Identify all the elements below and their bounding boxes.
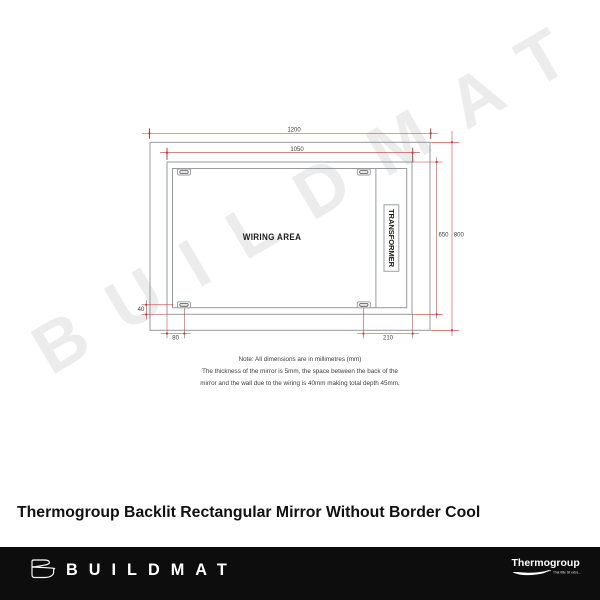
svg-text:WIRING AREA: WIRING AREA	[243, 231, 302, 242]
svg-text:1200: 1200	[287, 128, 301, 134]
svg-text:800: 800	[454, 232, 465, 238]
svg-text:650: 650	[439, 232, 450, 238]
svg-text:That little bit extra...: That little bit extra...	[553, 571, 581, 575]
svg-text:80: 80	[172, 335, 179, 341]
svg-text:40: 40	[138, 307, 145, 313]
svg-text:TRANSFORMER: TRANSFORMER	[387, 209, 396, 268]
svg-text:1050: 1050	[290, 147, 304, 153]
svg-text:210: 210	[383, 335, 394, 341]
